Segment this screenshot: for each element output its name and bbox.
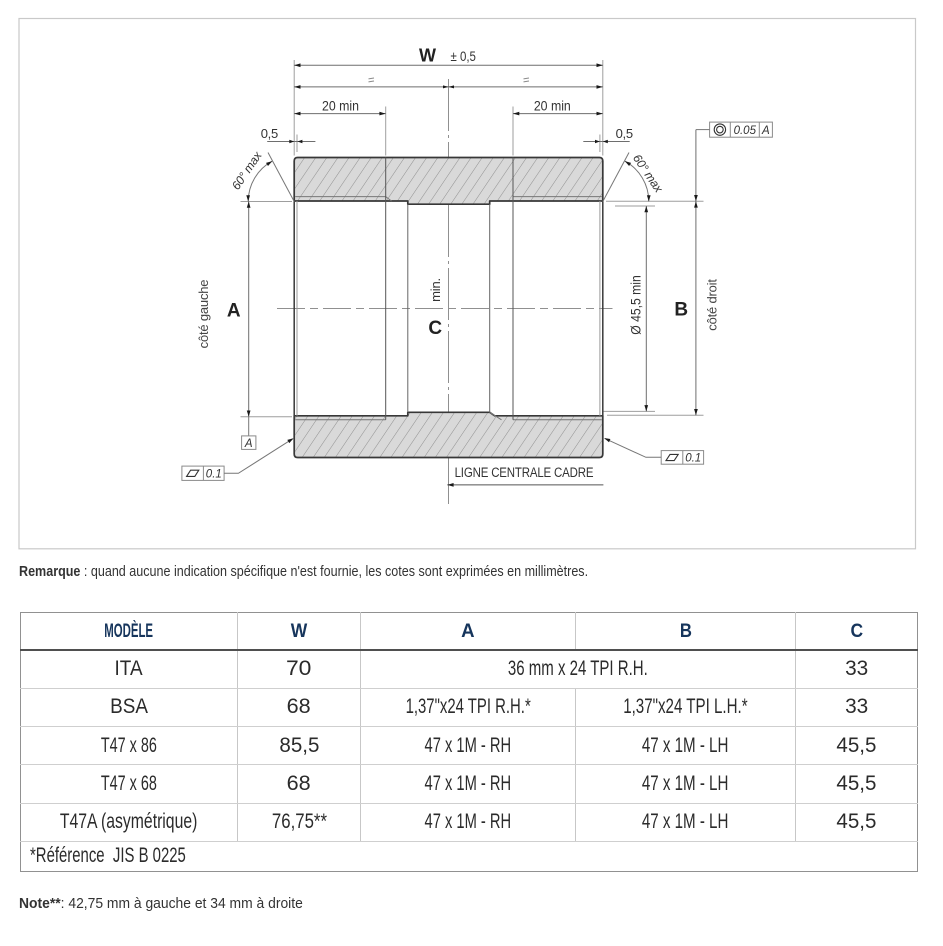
- svg-text:0.1: 0.1: [685, 453, 701, 465]
- svg-text:côté droit: côté droit: [705, 279, 720, 331]
- svg-text:A: A: [761, 125, 770, 137]
- svg-text:0.1: 0.1: [206, 469, 222, 481]
- svg-text:0.05: 0.05: [734, 125, 757, 137]
- svg-text:min.: min.: [428, 278, 443, 302]
- svg-text:C: C: [428, 318, 442, 339]
- svg-text:côté gauche: côté gauche: [196, 280, 211, 349]
- svg-text:± 0,5: ± 0,5: [451, 48, 476, 64]
- svg-text:20 min: 20 min: [534, 98, 571, 114]
- svg-text:LIGNE CENTRALE CADRE: LIGNE CENTRALE CADRE: [455, 465, 594, 480]
- svg-text:Ø 45,5 min: Ø 45,5 min: [628, 275, 644, 335]
- svg-text:20 min: 20 min: [322, 98, 359, 114]
- svg-text:W: W: [419, 46, 436, 66]
- svg-text:0,5: 0,5: [616, 126, 633, 141]
- svg-text:B: B: [674, 300, 688, 321]
- svg-text:A: A: [227, 301, 241, 322]
- svg-text:0,5: 0,5: [261, 126, 278, 141]
- svg-text:A: A: [244, 438, 253, 450]
